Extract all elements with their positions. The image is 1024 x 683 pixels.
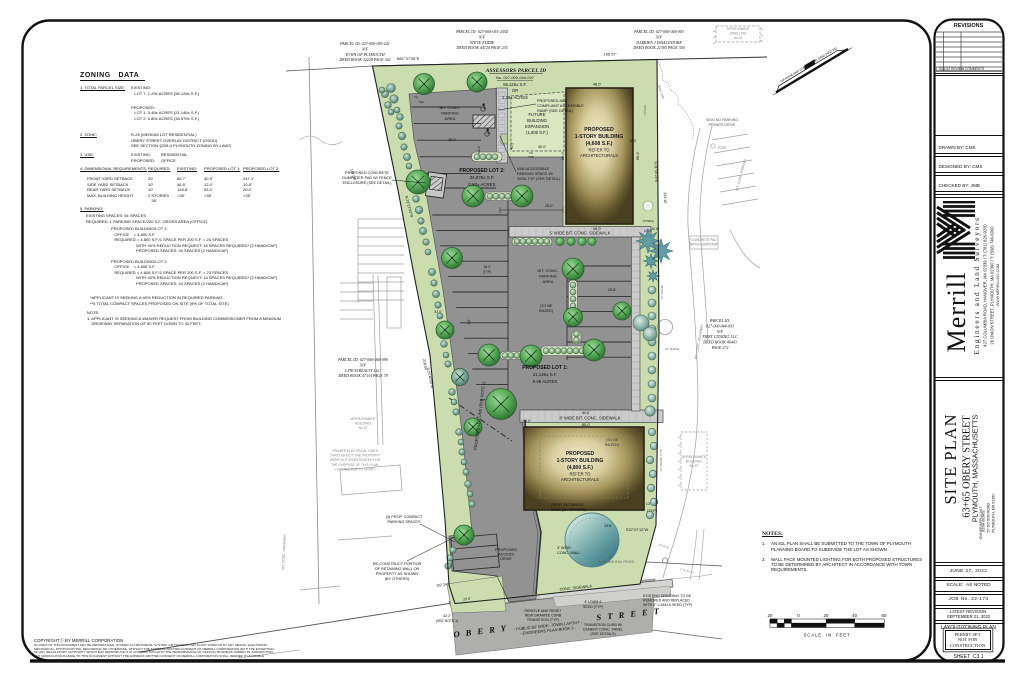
svg-text:PROPERTY AS SHOWN: PROPERTY AS SHOWN — [376, 572, 419, 576]
svg-text:PROP. RETAINING: PROP. RETAINING — [551, 503, 584, 507]
svg-text:S32°07'12"W: S32°07'12"W — [626, 528, 649, 532]
svg-text:027-000-044-003: 027-000-044-003 — [706, 323, 734, 328]
svg-text:DEED BOOK 47334 PAGE 78: DEED BOOK 47334 PAGE 78 — [337, 373, 387, 378]
svg-text:N/F: N/F — [716, 329, 724, 334]
svg-text:80.0': 80.0' — [582, 422, 591, 427]
svg-text:AREA: AREA — [543, 279, 554, 284]
svg-text:PARCEL ID:: PARCEL ID: — [709, 318, 731, 323]
svg-text:56,126± S.F.: 56,126± S.F. — [503, 82, 526, 87]
svg-text:(SEE NOTE 1): (SEE NOTE 1) — [436, 619, 458, 623]
svg-text:42.2': 42.2' — [443, 614, 451, 618]
svg-text:PRIVATE DRIVE: PRIVATE DRIVE — [709, 123, 736, 127]
svg-text:BUILDING: BUILDING — [527, 118, 547, 123]
svg-text:RAZED): RAZED) — [539, 309, 554, 313]
svg-text:ARCHITECTURALS: ARCHITECTURALS — [561, 477, 599, 482]
svg-text:20: 20 — [824, 613, 829, 618]
svg-text:9.0': 9.0' — [467, 319, 471, 324]
svg-text:WITH 4" LOAM & SEED (TYP): WITH 4" LOAM & SEED (TYP) — [643, 603, 692, 607]
svg-text:SEED (TYP): SEED (TYP) — [583, 605, 603, 609]
svg-text:THE PURPOSE OF THIS PLAN.: THE PURPOSE OF THIS PLAN. — [331, 463, 379, 467]
svg-text:BUILDING: BUILDING — [355, 422, 371, 426]
svg-text:60: 60 — [882, 613, 887, 618]
svg-text:REFER TO: REFER TO — [588, 148, 610, 153]
svg-text:THROUGHOUT THE PROPERTY: THROUGHOUT THE PROPERTY — [330, 454, 381, 458]
svg-text:N/F: N/F — [655, 34, 663, 39]
svg-text:REMOVE AND RESET: REMOVE AND RESET — [525, 609, 563, 613]
svg-text:PAGE 272: PAGE 272 — [711, 345, 729, 350]
svg-text:RAMP (SEE DETAIL): RAMP (SEE DETAIL) — [537, 109, 574, 113]
svg-text:1-STORY BUILDING: 1-STORY BUILDING — [557, 458, 604, 464]
svg-text:PARCEL ID: 027-000-055-241: PARCEL ID: 027-000-055-241 — [339, 41, 390, 46]
svg-text:96.0': 96.0' — [635, 151, 640, 160]
svg-text:OF RETAINING WALL ON: OF RETAINING WALL ON — [375, 567, 420, 571]
svg-text:DRIVE: DRIVE — [500, 557, 512, 561]
svg-text:TOWN OF PLYMOUTH: TOWN OF PLYMOUTH — [345, 52, 386, 57]
svg-text:APPROXIMATE: APPROXIMATE — [350, 417, 376, 421]
svg-text:(3) PROP. COMPACT: (3) PROP. COMPACT — [386, 515, 423, 519]
svg-text:PARKING SPACE W/: PARKING SPACE W/ — [517, 172, 554, 176]
svg-text:OR: OR — [512, 88, 518, 93]
svg-text:TOP: TOP — [418, 100, 424, 105]
svg-text:(1,600 S.F.): (1,600 S.F.) — [526, 130, 548, 135]
svg-text:VG: VG — [414, 95, 419, 100]
svg-text:N/F: N/F — [478, 34, 486, 39]
svg-text:NEW GRANITE CURB: NEW GRANITE CURB — [525, 614, 562, 618]
svg-text:ACCESS: ACCESS — [498, 553, 514, 557]
svg-text:REFER TO: REFER TO — [569, 472, 591, 477]
svg-text:LYNCH REALTY LLC: LYNCH REALTY LLC — [344, 368, 381, 373]
svg-text:(TO BE: (TO BE — [606, 438, 619, 442]
svg-text:8' WIDE BIT. CONC. SIDEWALK: 8' WIDE BIT. CONC. SIDEWALK — [560, 416, 621, 421]
svg-text:TRANSITION (TYP): TRANSITION (TYP) — [527, 618, 559, 622]
svg-text:PARKING SPACES: PARKING SPACES — [388, 520, 421, 524]
svg-text:PROPOSED LOT 2:: PROPOSED LOT 2: — [459, 168, 505, 174]
svg-text:309.16': 309.16' — [663, 192, 668, 204]
svg-text:PROPOSED LOT 1:: PROPOSED LOT 1: — [522, 365, 568, 371]
svg-text:(SEE DETAILS): (SEE DETAILS) — [590, 632, 615, 636]
svg-text:80.0': 80.0' — [582, 411, 590, 415]
svg-text:60.0': 60.0' — [523, 419, 531, 423]
svg-text:DARRIEN J DISALVATORE: DARRIEN J DISALVATORE — [635, 40, 682, 45]
svg-text:PARCEL ID: 027-000-044-096: PARCEL ID: 027-000-044-096 — [337, 357, 388, 362]
svg-text:SCALE IN FEET: SCALE IN FEET — [804, 633, 851, 638]
svg-text:CONTRACTOR TO VERIFY: CONTRACTOR TO VERIFY — [334, 467, 376, 471]
svg-text:FIRST CITADEL LLC: FIRST CITADEL LLC — [701, 334, 738, 339]
svg-text:(TOWN): (TOWN) — [643, 105, 647, 116]
svg-text:POST: POST — [718, 146, 727, 150]
svg-text:1-STORY BUILDING: 1-STORY BUILDING — [575, 134, 624, 140]
svg-text:34,979± S.F.: 34,979± S.F. — [470, 175, 495, 180]
svg-text:33.0': 33.0' — [434, 310, 442, 314]
svg-text:REMOVED AND REPLACED: REMOVED AND REPLACED — [643, 599, 690, 603]
svg-text:0.49 ACRES: 0.49 ACRES — [533, 379, 558, 384]
svg-text:25.0': 25.0' — [448, 138, 456, 142]
svg-text:BIT. CONC.: BIT. CONC. — [538, 268, 559, 273]
svg-text:SIGN-TYP (SEE DETAIL): SIGN-TYP (SEE DETAIL) — [517, 177, 561, 181]
svg-text:1.29± ACRES: 1.29± ACRES — [502, 95, 528, 100]
svg-text:COMPLIANT ACCESSIBLE: COMPLIANT ACCESSIBLE — [537, 104, 584, 108]
svg-text:(TYP): (TYP) — [483, 270, 491, 274]
svg-text:5' WIDE BIT. CONC. SIDEWALK: 5' WIDE BIT. CONC. SIDEWALK — [550, 231, 611, 236]
svg-text:No.57: No.57 — [689, 464, 698, 468]
svg-text:BUILDING: BUILDING — [686, 460, 702, 464]
svg-text:WALL (BY OTHERS): WALL (BY OTHERS) — [551, 508, 587, 512]
svg-text:BIT. CONC.: BIT. CONC. — [440, 105, 461, 110]
svg-text:24" MAPLE: 24" MAPLE — [665, 347, 679, 351]
svg-text:10.8': 10.8' — [651, 227, 659, 231]
svg-text:ASSESSORS PARCEL ID: ASSESSORS PARCEL ID — [485, 68, 546, 74]
svg-text:CEMENT CONC. PANEL: CEMENT CONC. PANEL — [583, 628, 623, 632]
svg-text:48.0': 48.0' — [593, 82, 602, 87]
svg-text:12" CEDAR (TYP): 12" CEDAR (TYP) — [659, 449, 663, 472]
svg-text:PROPOSED ADA: PROPOSED ADA — [537, 99, 568, 103]
svg-text:9+0.8': 9+0.8' — [477, 145, 481, 154]
svg-text:APPROXIMATE: APPROXIMATE — [681, 455, 707, 459]
svg-text:STEVE EDDIE: STEVE EDDIE — [470, 40, 495, 45]
svg-text:PARCEL ID: 027-000-055-245Z: PARCEL ID: 027-000-055-245Z — [455, 29, 509, 34]
svg-text:20: 20 — [768, 613, 773, 618]
svg-text:N/F: N/F — [361, 46, 369, 51]
svg-text:WITH DUMPSTER: WITH DUMPSTER — [691, 243, 719, 247]
svg-text:4' LOAM &: 4' LOAM & — [584, 600, 602, 604]
svg-text:(TOWN): (TOWN) — [642, 219, 653, 223]
svg-text:N/F: N/F — [359, 362, 367, 367]
svg-text:25.0': 25.0' — [545, 204, 553, 208]
svg-text:TOP: TOP — [528, 155, 534, 159]
svg-text:16.0': 16.0' — [630, 139, 637, 143]
svg-text:DEED BOOK 32228 PAGE 342: DEED BOOK 32228 PAGE 342 — [338, 57, 390, 62]
svg-text:23.8': 23.8' — [608, 288, 616, 292]
svg-text:PARCEL ID: 027-000-044-003: PARCEL ID: 027-000-044-003 — [633, 29, 684, 34]
svg-text:DWELLING: DWELLING — [730, 31, 747, 35]
svg-text:18.0': 18.0' — [483, 265, 491, 269]
svg-text:POST AND RAIL FENCE: POST AND RAIL FENCE — [598, 560, 636, 564]
svg-text:APPROXIMATE: APPROXIMATE — [726, 27, 751, 31]
svg-text:40: 40 — [852, 613, 857, 618]
svg-text:No.29: No.29 — [734, 36, 743, 40]
svg-text:33.6': 33.6' — [604, 524, 612, 528]
svg-text:CONCRETE PAD: CONCRETE PAD — [691, 238, 717, 242]
svg-text:ENCLOSURE (SEE DETAIL): ENCLOSURE (SEE DETAIL) — [343, 181, 393, 185]
svg-text:ARCHITECTURALS: ARCHITECTURALS — [580, 153, 618, 158]
svg-text:TRANSITION CURB W/: TRANSITION CURB W/ — [584, 623, 622, 627]
svg-text:EXISTING DRIVEWAY TO BE: EXISTING DRIVEWAY TO BE — [643, 594, 692, 598]
svg-text:196.57': 196.57' — [604, 52, 617, 57]
svg-text:(BY OTHERS): (BY OTHERS) — [385, 577, 410, 581]
svg-text:3' WIDE: 3' WIDE — [557, 546, 571, 550]
svg-text:PROPOSED: PROPOSED — [495, 548, 517, 552]
svg-text:VAN ACCESSIBLE: VAN ACCESSIBLE — [517, 167, 550, 171]
svg-text:DEED BOOK 46443: DEED BOOK 46443 — [702, 340, 737, 345]
svg-text:No. 027-000-044-007: No. 027-000-044-007 — [496, 75, 535, 80]
svg-text:0.80± ACRES: 0.80± ACRES — [468, 182, 495, 187]
svg-text:RE-CONSTRUCT PORTION: RE-CONSTRUCT PORTION — [373, 562, 422, 566]
svg-text:(4,800 S.F.): (4,800 S.F.) — [567, 465, 593, 471]
svg-text:96.0': 96.0' — [560, 151, 565, 160]
svg-text:No.97: No.97 — [358, 426, 367, 430]
svg-text:PARKING: PARKING — [441, 111, 459, 116]
svg-text:40.0': 40.0' — [538, 145, 546, 149]
svg-text:PROPOSED: PROPOSED — [566, 451, 595, 457]
svg-text:WERE NOT INVESTIGATED FOR: WERE NOT INVESTIGATED FOR — [330, 458, 381, 462]
svg-text:N61°37'05"E: N61°37'05"E — [397, 56, 420, 61]
svg-text:SIGN NO PARKING: SIGN NO PARKING — [706, 118, 738, 122]
svg-text:DUMPSTER PAD W/ FENCE: DUMPSTER PAD W/ FENCE — [342, 176, 392, 180]
svg-text:(TO BE: (TO BE — [540, 304, 553, 308]
svg-text:PARKING: PARKING — [539, 274, 557, 279]
svg-text:PROPOSED: PROPOSED — [584, 127, 614, 133]
svg-text:DEED BOOK 21385 PAGE 350: DEED BOOK 21385 PAGE 350 — [632, 45, 684, 50]
svg-text:CONC. WALL: CONC. WALL — [557, 551, 581, 555]
svg-text:DEED BOOK 44720 PAGE 235: DEED BOOK 44720 PAGE 235 — [455, 45, 507, 50]
svg-text:(4,608 S.F.): (4,608 S.F.) — [586, 141, 613, 147]
svg-text:PRIVATE ELECTRICAL LINES: PRIVATE ELECTRICAL LINES — [332, 449, 378, 453]
svg-text:12" CEDAR: 12" CEDAR — [660, 285, 664, 300]
svg-text:RAZED): RAZED) — [605, 443, 620, 447]
svg-text:48.0': 48.0' — [593, 226, 602, 231]
svg-text:AREA: AREA — [445, 116, 456, 121]
svg-text:EXPANSION: EXPANSION — [525, 124, 549, 129]
svg-text:21,146± S.F.: 21,146± S.F. — [533, 372, 558, 377]
